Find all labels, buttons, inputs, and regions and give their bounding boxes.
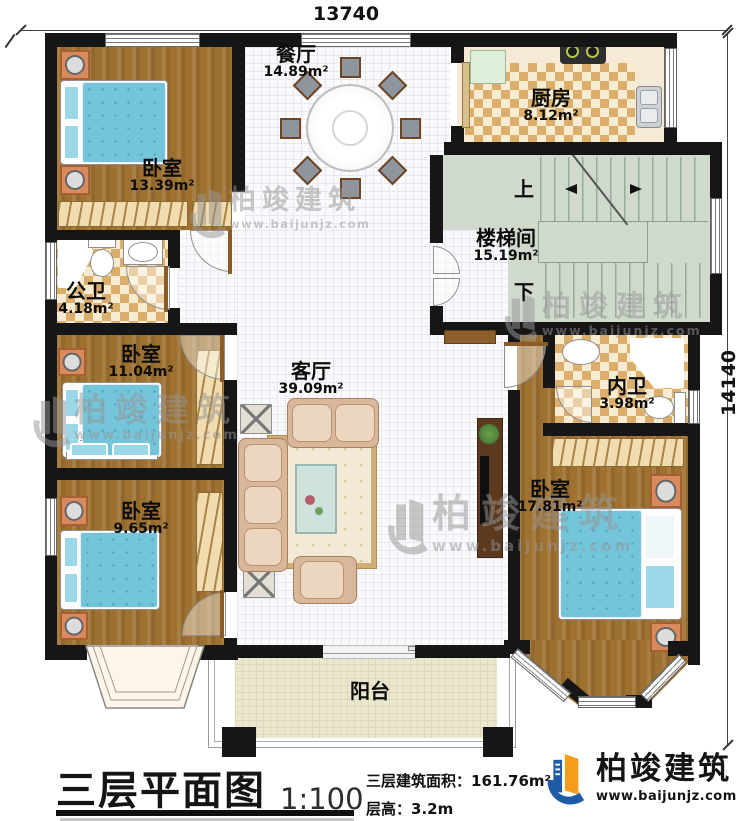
- toilet-bowl: [90, 249, 114, 277]
- wall-segment: [430, 155, 443, 243]
- pillow: [63, 85, 80, 121]
- room-label-living: 客厅 39.09m²: [278, 360, 343, 398]
- window: [688, 390, 700, 424]
- title-underline: [56, 810, 354, 816]
- window: [45, 498, 57, 556]
- toilet-tank: [674, 392, 686, 424]
- door-leaf: [504, 342, 548, 346]
- watermark-brand-name: 柏竣建筑: [229, 185, 370, 217]
- room-label-bedroom-bottom-left: 卧室 9.65m²: [113, 500, 168, 538]
- watermark: 柏竣建筑 www.baijunjz.com: [26, 392, 239, 448]
- sofa-cushion: [244, 486, 282, 524]
- bed-blanket: [82, 82, 166, 163]
- coffee-table-decor: [315, 507, 323, 515]
- wall-segment: [168, 230, 180, 268]
- sofa-cushion: [292, 404, 332, 442]
- brand-logo-icon: [540, 752, 586, 806]
- wall-segment: [430, 306, 443, 335]
- pillow: [644, 564, 676, 610]
- title-block: 三层平面图 1:100: [56, 758, 364, 816]
- kitchen-sink-basin: [640, 108, 658, 123]
- door-leaf: [220, 335, 224, 382]
- balcony-column: [222, 727, 256, 757]
- floor-area-row: 三层建筑面积：161.76m²: [366, 770, 551, 791]
- dining-chair: [400, 118, 421, 139]
- brand-logo: 柏竣建筑 www.baijunjz.com: [540, 752, 737, 806]
- watermark-website: www.baijunjz.com: [542, 323, 702, 338]
- bed-blanket: [80, 532, 158, 608]
- refrigerator: [470, 50, 506, 84]
- nightstand: [60, 165, 90, 195]
- wall-segment: [232, 45, 245, 192]
- nightstand: [650, 474, 682, 508]
- shoe-cabinet: [444, 330, 496, 344]
- window: [664, 48, 677, 128]
- wardrobe: [196, 492, 223, 592]
- armchair-cushion: [300, 561, 344, 599]
- watermark-brand-name: 柏竣建筑: [542, 290, 702, 323]
- window: [45, 242, 57, 300]
- room-label-public-bath: 公卫 4.18m²: [58, 280, 113, 318]
- watermark-brand-name: 柏竣建筑: [74, 392, 239, 428]
- nightstand: [60, 612, 88, 640]
- stair-direction-arrow: [630, 184, 642, 194]
- wardrobe: [58, 201, 188, 227]
- toilet-tank: [88, 239, 116, 248]
- kitchen-sink-basin: [640, 90, 658, 105]
- brand-building-icon: [380, 494, 432, 556]
- window: [710, 198, 722, 274]
- balcony-step: [322, 645, 416, 659]
- door-leaf: [220, 590, 224, 638]
- coffee-table-decor: [305, 495, 315, 505]
- floor-plan-canvas: 柏竣建筑 www.baijunjz.com 柏竣建筑 www.baijunjz.…: [0, 0, 750, 821]
- brand-website: www.baijunjz.com: [596, 789, 737, 804]
- floor-height-row: 层高：3.2m: [366, 798, 551, 819]
- bay-right-window-bottom: [578, 696, 636, 708]
- dining-table-center: [332, 110, 368, 146]
- brand-name: 柏竣建筑: [596, 754, 737, 785]
- closet: [552, 438, 684, 467]
- wall-segment: [688, 335, 700, 665]
- watermark-website: www.baijunjz.com: [229, 217, 370, 231]
- wall-segment: [45, 468, 225, 480]
- dimension-tick: [722, 739, 733, 750]
- watermark: 柏竣建筑 www.baijunjz.com: [380, 494, 633, 556]
- top-dimension-line: [20, 30, 728, 31]
- wall-segment: [45, 33, 57, 657]
- room-label-bedroom-right: 卧室 17.81m²: [517, 478, 582, 516]
- sofa-cushion: [335, 404, 375, 442]
- room-label-stairwell: 楼梯间 15.19m²: [473, 227, 538, 265]
- plan-title: 三层平面图: [56, 758, 266, 816]
- nightstand: [60, 496, 88, 526]
- dining-chair: [340, 57, 361, 78]
- floor-height-label: 层高：: [366, 800, 411, 818]
- watermark: 柏竣建筑 www.baijunjz.com: [183, 185, 370, 239]
- room-label-balcony: 阳台: [350, 680, 390, 702]
- pillow: [63, 124, 80, 160]
- end-table: [240, 404, 272, 434]
- plan-info: 三层建筑面积：161.76m² 层高：3.2m: [366, 770, 551, 819]
- wall-segment: [451, 33, 464, 63]
- room-label-kitchen: 厨房 8.12m²: [523, 87, 578, 125]
- wall-segment: [415, 645, 510, 658]
- top-dimension-value: 13740: [313, 3, 379, 25]
- right-dimension-value: 14140: [718, 350, 740, 416]
- bay-window-left: [80, 644, 210, 716]
- floor-area-label: 三层建筑面积：: [366, 772, 471, 790]
- sofa-cushion: [244, 444, 282, 482]
- plant: [479, 424, 499, 444]
- room-label-bedroom-top-left: 卧室 13.39m²: [129, 157, 194, 195]
- pillow: [644, 514, 676, 560]
- pillow: [63, 572, 79, 604]
- wall-segment: [444, 142, 722, 155]
- door-leaf: [164, 266, 168, 312]
- room-label-bedroom-mid-left: 卧室 11.04m²: [108, 343, 173, 381]
- wall-segment: [45, 323, 237, 335]
- pillow: [63, 536, 79, 568]
- coffee-table: [295, 464, 337, 534]
- wall-segment: [45, 230, 180, 240]
- nightstand: [58, 348, 86, 376]
- washbasin: [128, 242, 158, 262]
- wall-segment: [168, 308, 180, 323]
- brand-building-icon: [26, 392, 74, 448]
- wall-segment: [543, 423, 688, 436]
- stair-rail-line: [648, 221, 708, 222]
- corner-mark: [5, 34, 16, 48]
- watermark-website: www.baijunjz.com: [74, 428, 239, 443]
- stair-down-label: 下: [514, 281, 534, 303]
- balcony-column: [483, 727, 513, 757]
- window: [105, 33, 200, 47]
- dining-chair: [280, 118, 301, 139]
- watermark-website: www.baijunjz.com: [432, 537, 633, 555]
- wall-segment: [235, 645, 323, 658]
- stair-direction-arrow: [565, 184, 577, 194]
- stair-landing: [538, 221, 648, 263]
- floor-height-value: 3.2m: [411, 800, 453, 818]
- wall-segment: [451, 126, 464, 155]
- stair-up-label: 上: [514, 178, 534, 200]
- room-label-inner-bath: 内卫 3.98m²: [599, 375, 654, 413]
- washbasin: [562, 339, 600, 365]
- sofa-cushion: [244, 528, 282, 566]
- kitchen-door-leaf: [462, 62, 470, 128]
- nightstand: [60, 50, 90, 80]
- room-label-dining: 餐厅 14.89m²: [263, 43, 328, 81]
